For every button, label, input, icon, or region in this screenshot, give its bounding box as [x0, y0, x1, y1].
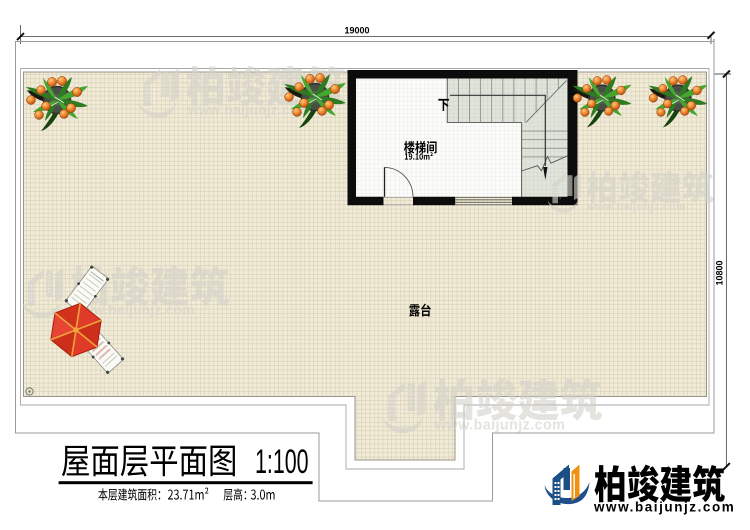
svg-text:1:100: 1:100 — [255, 443, 309, 481]
svg-text:www.baijunjz.com: www.baijunjz.com — [593, 500, 735, 515]
svg-text:10800: 10800 — [715, 260, 725, 285]
svg-text:19000: 19000 — [344, 25, 369, 35]
